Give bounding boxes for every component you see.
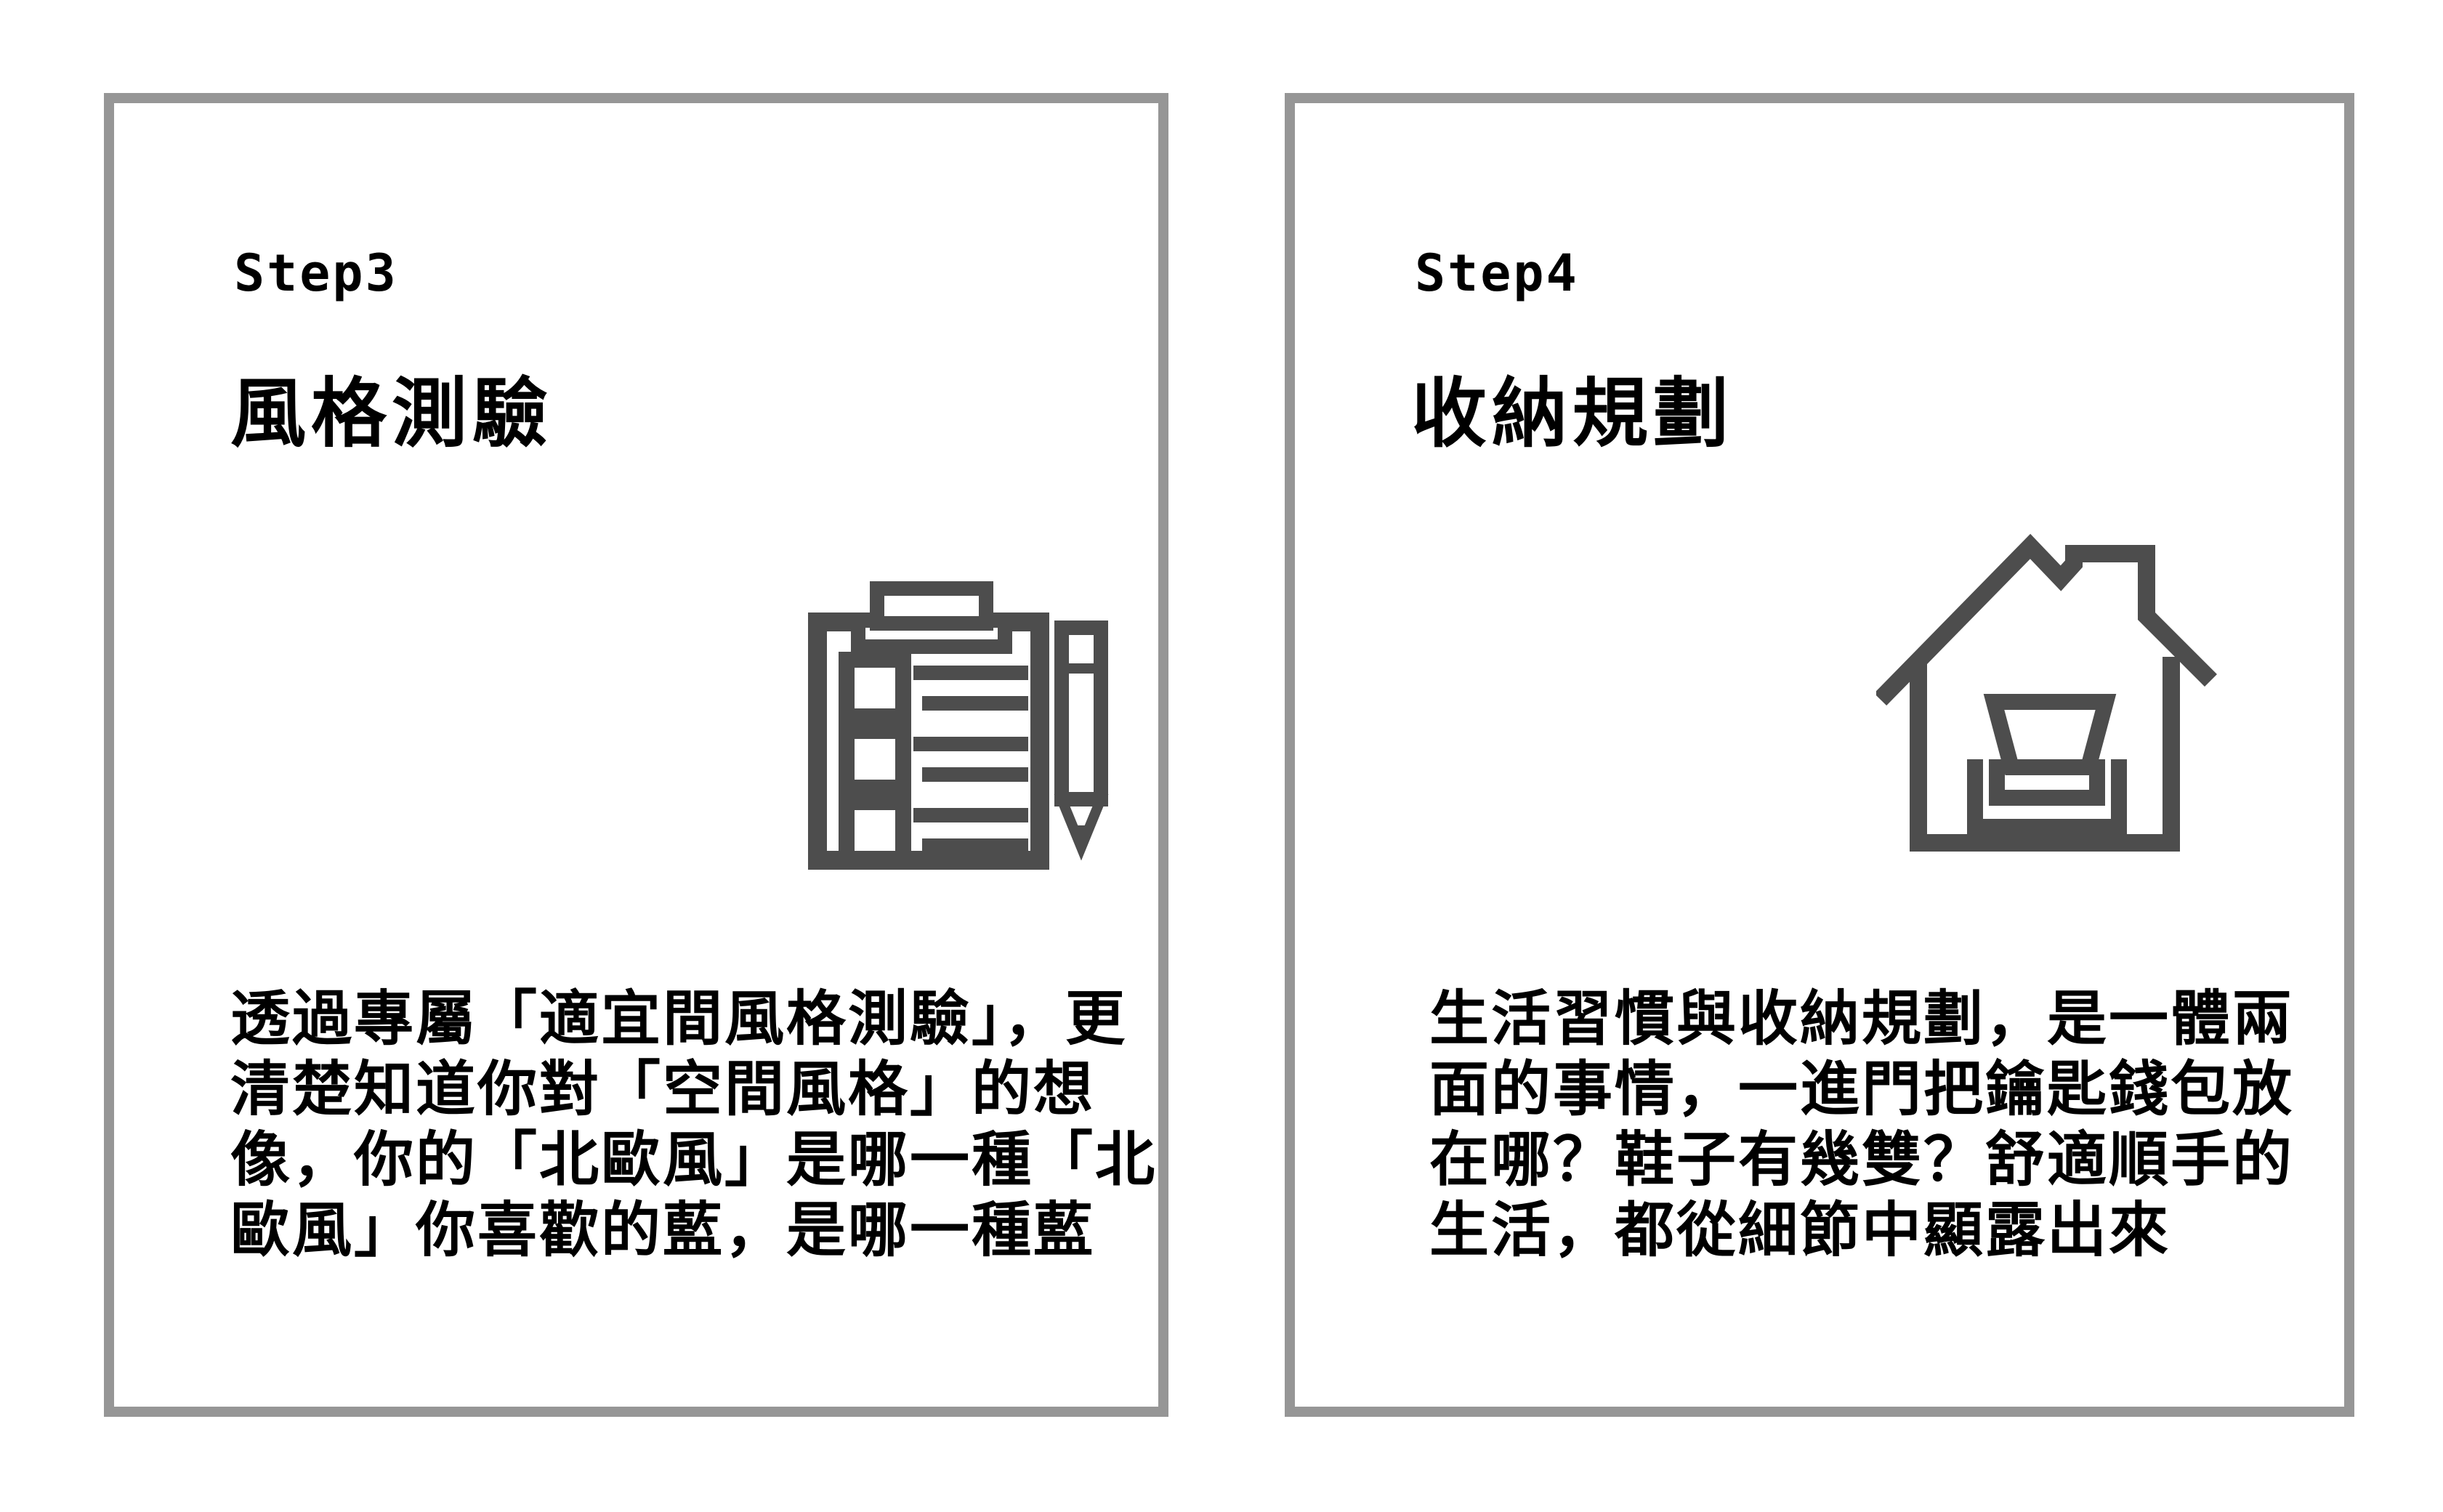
body-line: 生活習慣與收納規劃，是一體兩 — [1429, 984, 2352, 1054]
body-line: 透過專屬「適宜間風格測驗」，更 — [230, 984, 1153, 1054]
body-line: 在哪？鞋子有幾雙？舒適順手的 — [1429, 1125, 2352, 1195]
body-line: 清楚知道你對「空間風格」的想 — [230, 1054, 1153, 1125]
body-line: 像，你的「北歐風」是哪一種「北 — [230, 1125, 1153, 1195]
step-label: Step4 — [1415, 247, 1579, 299]
step-label: Step3 — [234, 247, 398, 299]
body-line: 面的事情，一進門把鑰匙錢包放 — [1429, 1054, 2352, 1125]
card-title: 風格測驗 — [230, 373, 553, 455]
card-body-text: 生活習慣與收納規劃，是一體兩 面的事情，一進門把鑰匙錢包放 在哪？鞋子有幾雙？舒… — [1429, 984, 2352, 1266]
house-storage-icon — [1876, 523, 2219, 866]
card-body-text: 透過專屬「適宜間風格測驗」，更 清楚知道你對「空間風格」的想 像，你的「北歐風」… — [230, 984, 1153, 1266]
card-step3: Step3 風格測驗 — [104, 93, 1168, 1417]
card-step4: Step4 收納規劃 生活習慣與收納規劃，是一體兩 面的事情，一進門把鑰匙錢包放… — [1285, 93, 2354, 1417]
card-title: 收納規劃 — [1411, 373, 1734, 455]
checklist-pencil-icon — [804, 575, 1124, 875]
body-line: 歐風」你喜歡的藍，是哪一種藍 — [230, 1195, 1153, 1266]
body-line: 生活，都從細節中顯露出來 — [1429, 1195, 2352, 1266]
